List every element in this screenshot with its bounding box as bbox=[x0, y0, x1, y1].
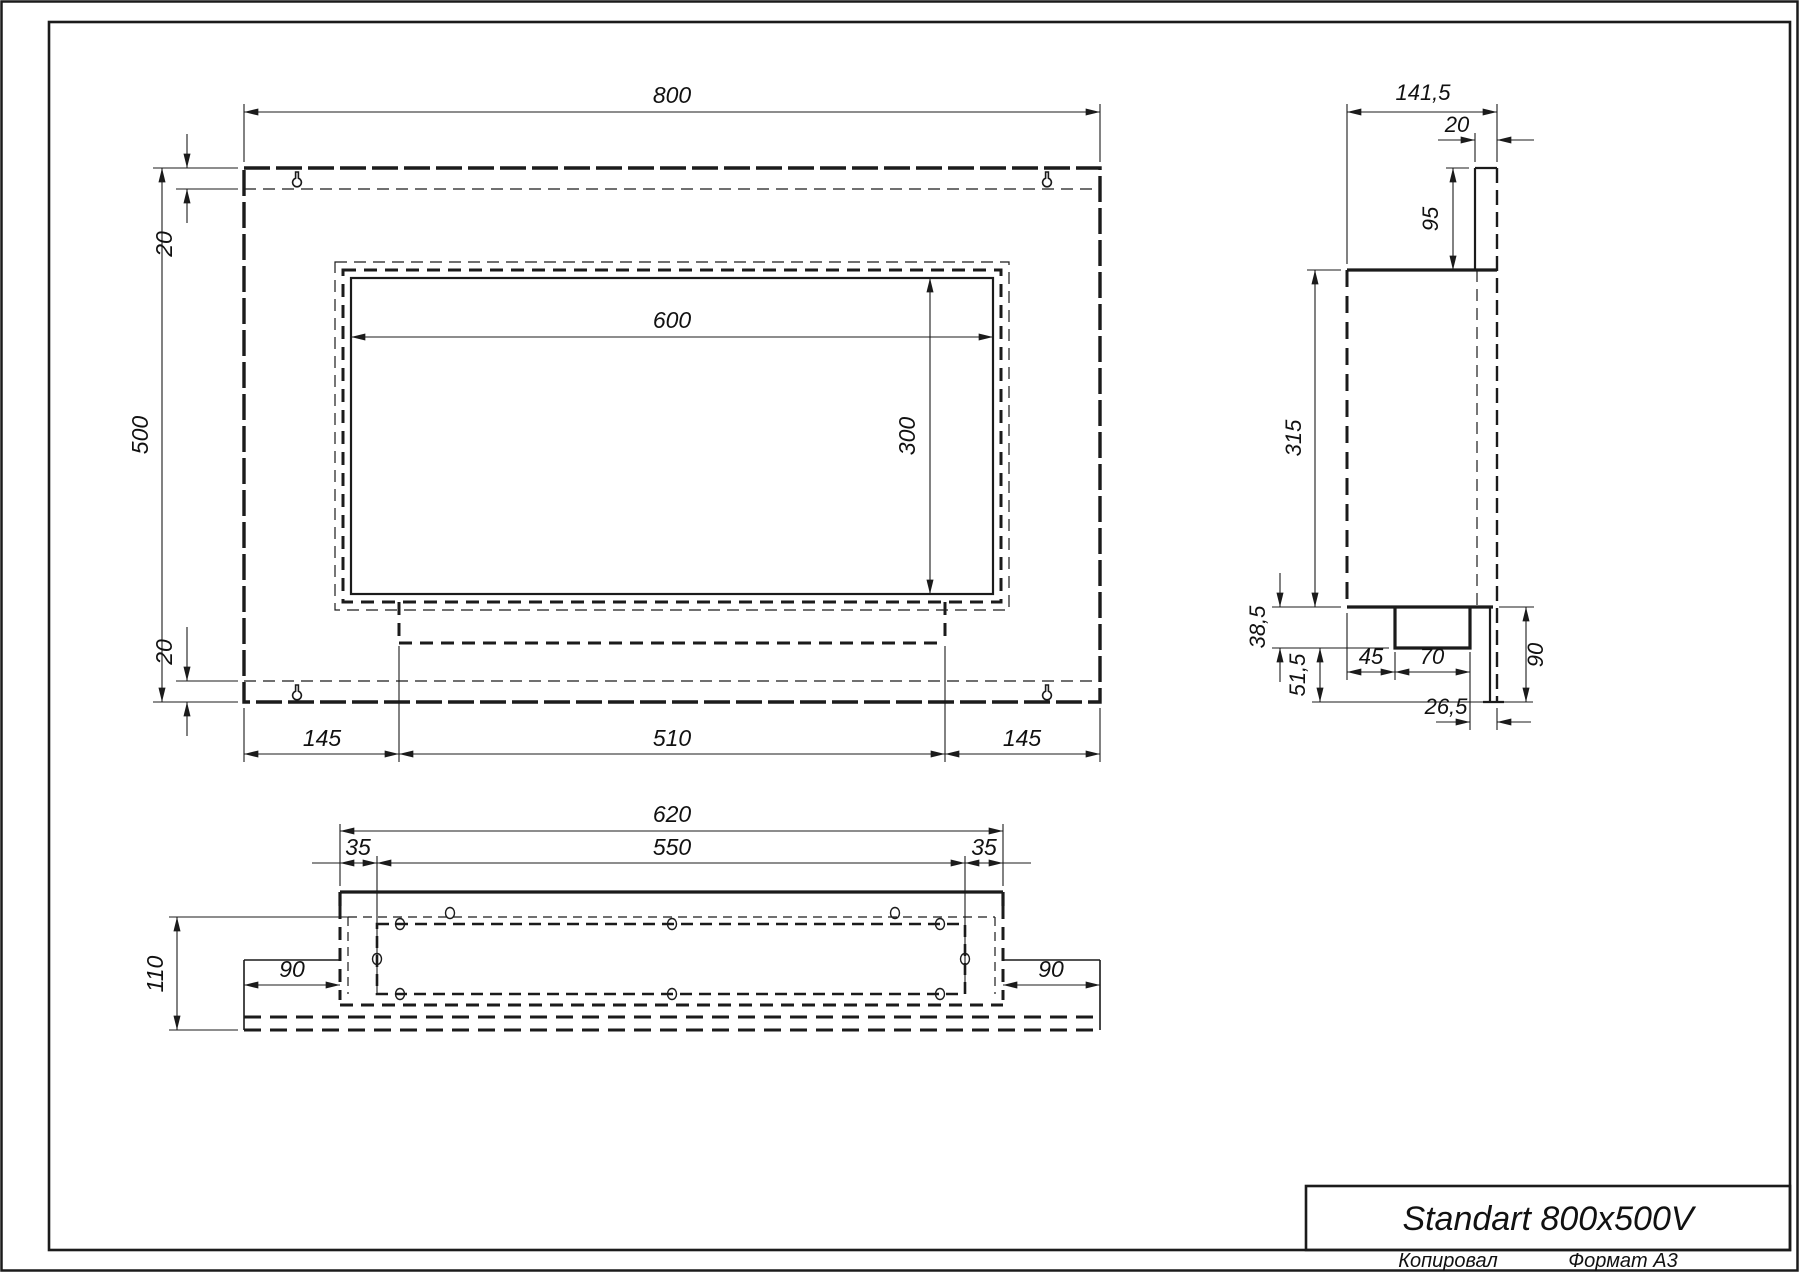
copied-label: Копировал bbox=[1398, 1250, 1497, 1272]
keyhole-icon bbox=[293, 685, 302, 700]
dim-side-bottom-plate: 90 bbox=[1499, 607, 1548, 702]
svg-text:20: 20 bbox=[151, 231, 177, 258]
footer-labels: Копировал Формат А3 bbox=[1398, 1250, 1677, 1272]
dim-side-tray-to-back: 26,5 bbox=[1424, 694, 1531, 730]
screw-holes bbox=[373, 908, 970, 1000]
dim-front-opening-width: 600 bbox=[351, 307, 993, 337]
dim-side-box-height: 315 bbox=[1272, 270, 1341, 607]
svg-text:20: 20 bbox=[1444, 112, 1470, 137]
svg-text:550: 550 bbox=[653, 834, 692, 860]
svg-text:141,5: 141,5 bbox=[1395, 80, 1451, 105]
svg-text:500: 500 bbox=[127, 416, 153, 455]
svg-text:110: 110 bbox=[142, 955, 168, 992]
side-view: 141,5 20 95 315 38,5 bbox=[1245, 80, 1548, 730]
panel-outline bbox=[244, 168, 1100, 702]
keyhole-icon bbox=[1043, 172, 1052, 187]
keyhole-icon bbox=[1043, 685, 1052, 700]
svg-text:510: 510 bbox=[653, 725, 692, 751]
format-label: Формат А3 bbox=[1568, 1250, 1677, 1272]
dim-side-top-to-box: 95 bbox=[1418, 168, 1469, 270]
drawing-canvas: 800 500 20 20 600 bbox=[0, 0, 1800, 1273]
keyhole-icon bbox=[293, 172, 302, 187]
dim-front-overall-height: 500 bbox=[127, 168, 238, 702]
svg-text:600: 600 bbox=[653, 307, 692, 333]
dim-bottom-inner-width: 35 550 35 bbox=[312, 834, 1031, 994]
svg-text:90: 90 bbox=[279, 956, 305, 982]
drawing-sheet: 800 500 20 20 600 bbox=[0, 0, 1800, 1273]
dim-front-bottom-flange: 20 bbox=[151, 627, 238, 736]
title-block: Standart 800x500V bbox=[1306, 1186, 1790, 1250]
svg-text:38,5: 38,5 bbox=[1245, 605, 1270, 649]
svg-text:45: 45 bbox=[1359, 644, 1384, 669]
svg-text:20: 20 bbox=[151, 639, 177, 666]
page-frame bbox=[2, 2, 1798, 1271]
svg-text:315: 315 bbox=[1281, 419, 1306, 456]
svg-text:145: 145 bbox=[303, 725, 342, 751]
inner-frame-outline bbox=[377, 924, 965, 994]
dim-front-bottom-chain: 145 510 145 bbox=[244, 646, 1100, 762]
bottom-view: 620 35 550 35 110 90 9 bbox=[142, 801, 1100, 1030]
svg-text:26,5: 26,5 bbox=[1424, 694, 1469, 719]
svg-text:35: 35 bbox=[345, 834, 371, 860]
tray-outline-side bbox=[1395, 607, 1470, 648]
svg-text:90: 90 bbox=[1523, 642, 1548, 667]
dim-bottom-overall-depth: 110 bbox=[142, 917, 348, 1030]
front-view: 800 500 20 20 600 bbox=[127, 82, 1100, 762]
svg-text:300: 300 bbox=[894, 417, 920, 456]
svg-text:70: 70 bbox=[1420, 644, 1445, 669]
svg-text:51,5: 51,5 bbox=[1285, 653, 1310, 697]
dim-front-opening-height: 300 bbox=[894, 278, 930, 594]
tray-hidden-outline bbox=[399, 602, 945, 643]
dim-side-bracket-depth: 20 bbox=[1438, 112, 1534, 162]
svg-text:95: 95 bbox=[1418, 206, 1443, 231]
model-name: Standart 800x500V bbox=[1402, 1200, 1696, 1238]
bottom-plate bbox=[1483, 607, 1504, 702]
svg-text:620: 620 bbox=[653, 801, 692, 827]
svg-text:145: 145 bbox=[1003, 725, 1042, 751]
dim-front-top-flange: 20 bbox=[151, 134, 238, 258]
svg-text:800: 800 bbox=[653, 82, 692, 108]
svg-text:90: 90 bbox=[1038, 956, 1064, 982]
svg-text:35: 35 bbox=[971, 834, 997, 860]
dim-front-overall-width: 800 bbox=[244, 82, 1100, 162]
